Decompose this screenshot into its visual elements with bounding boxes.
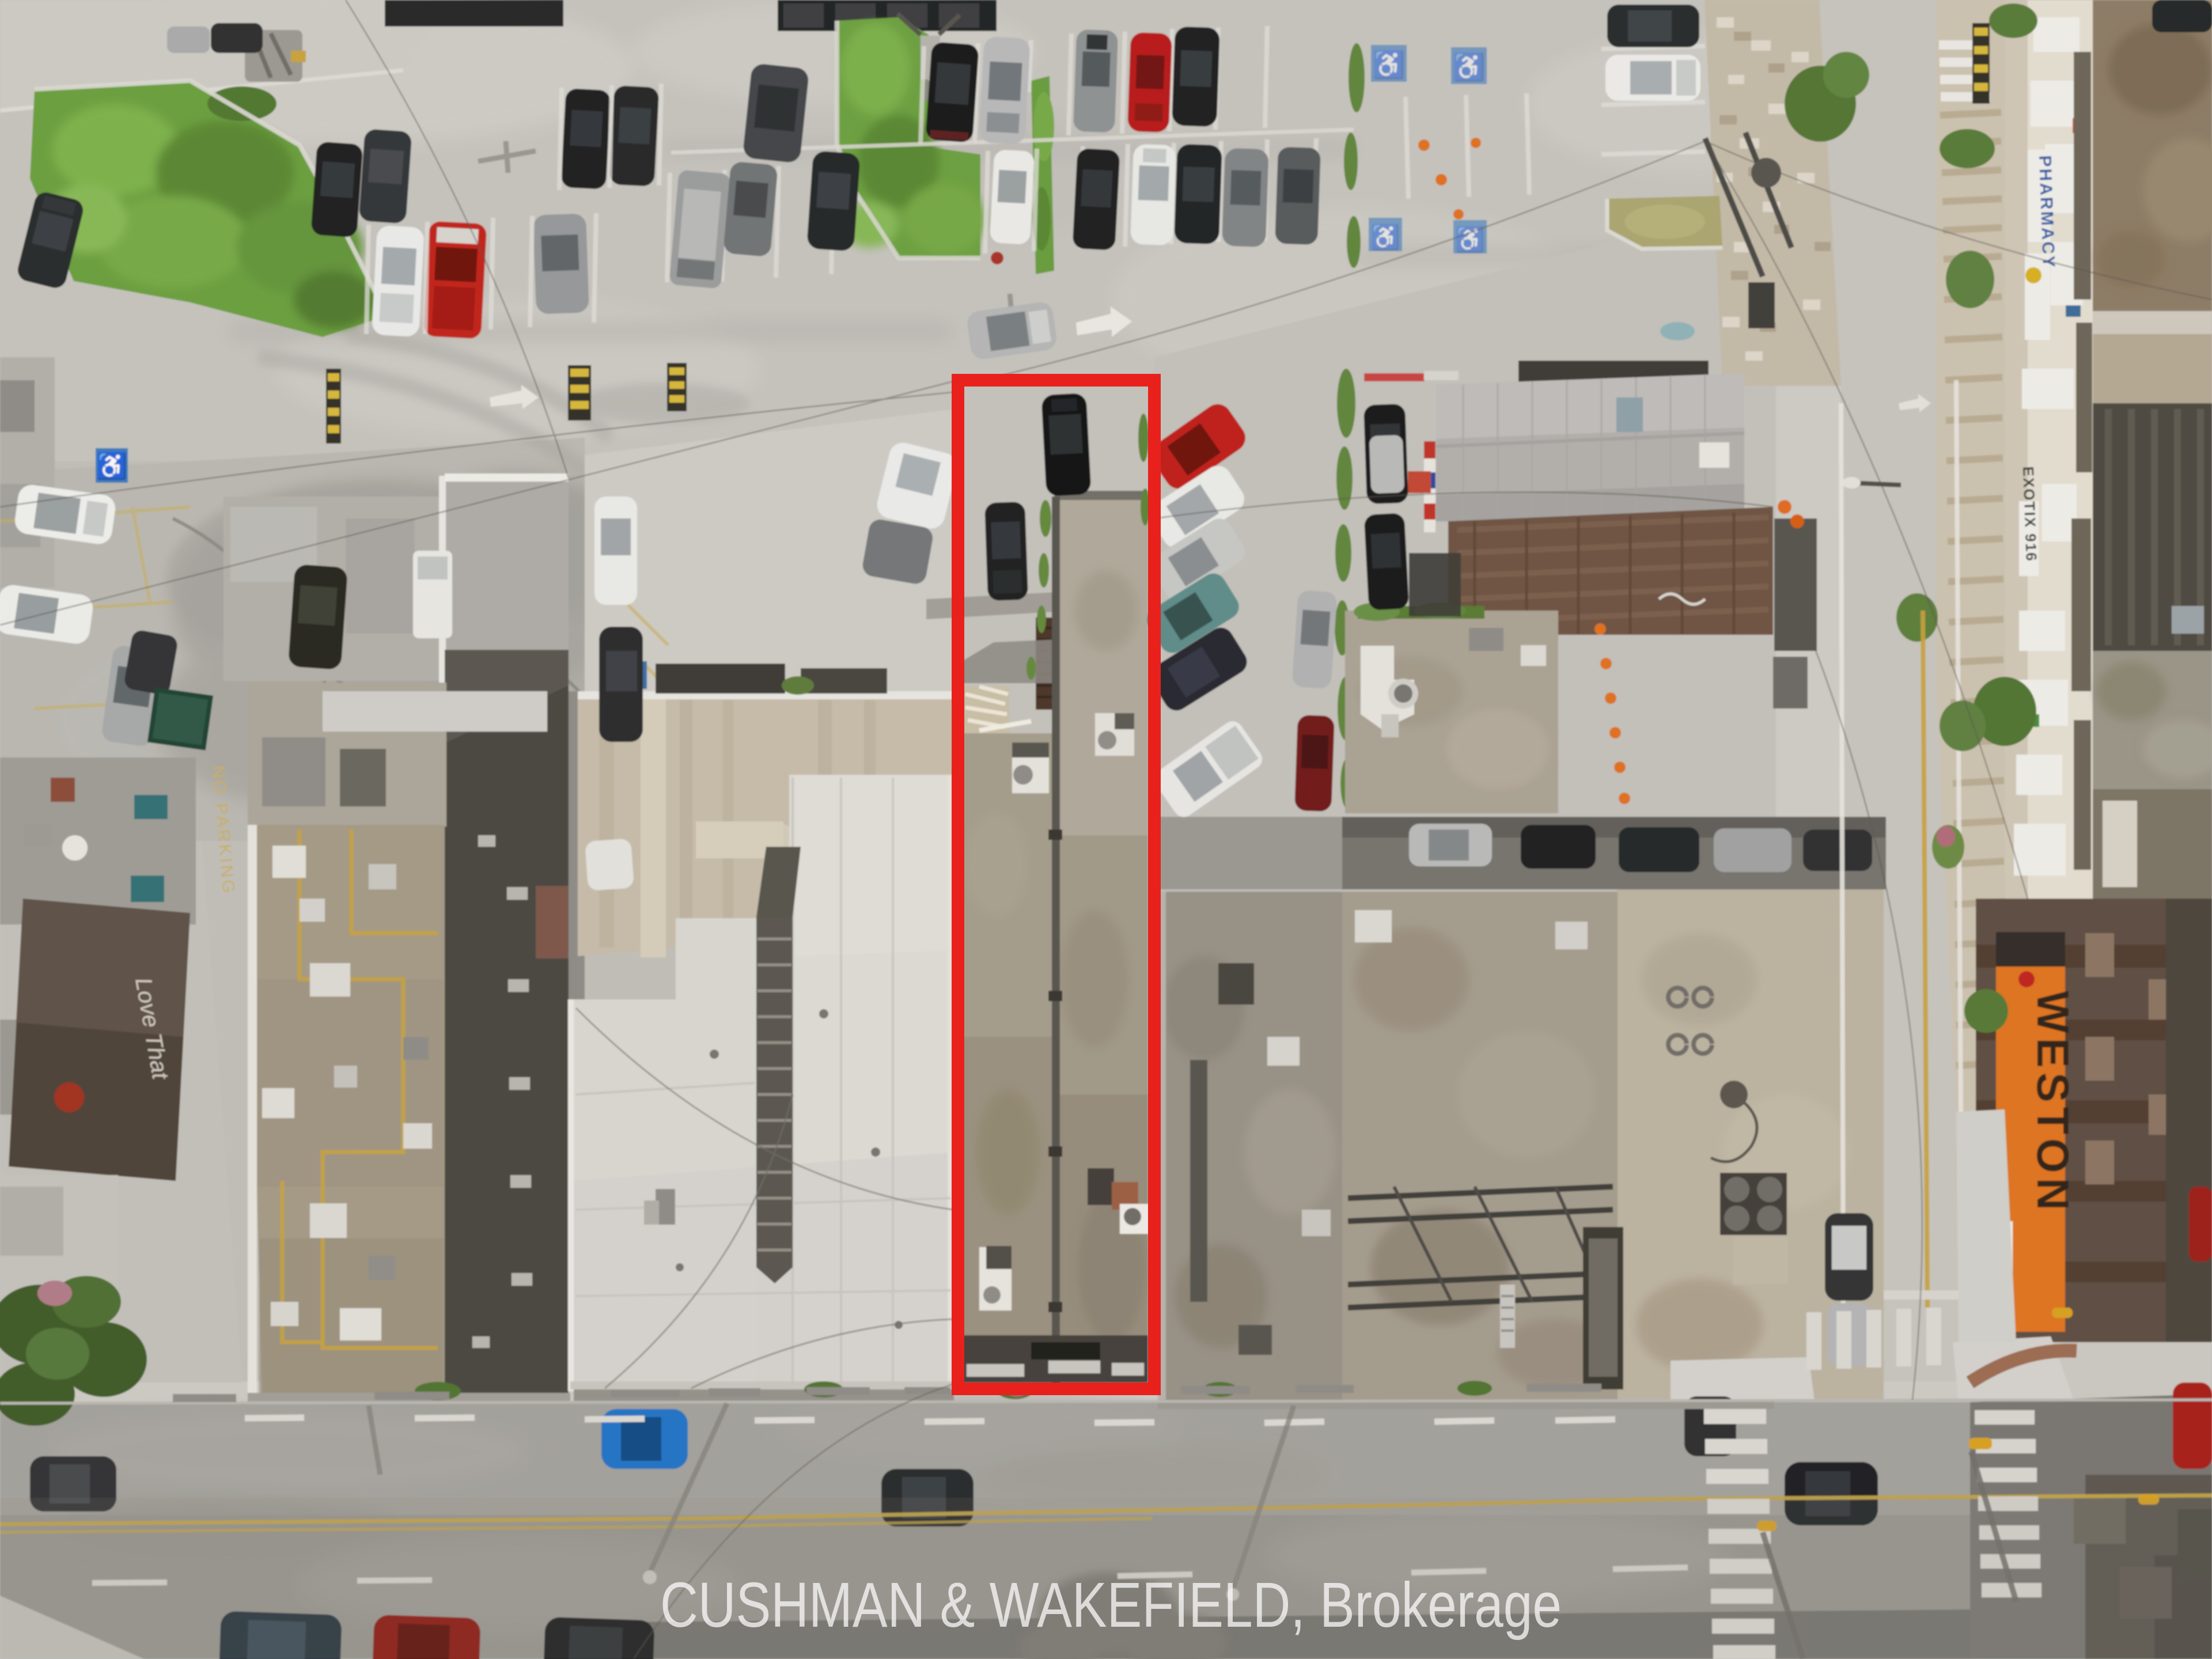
svg-text:CUSHMAN & WAKEFIELD, Brokerage: CUSHMAN & WAKEFIELD, Brokerage [660,1570,1562,1641]
